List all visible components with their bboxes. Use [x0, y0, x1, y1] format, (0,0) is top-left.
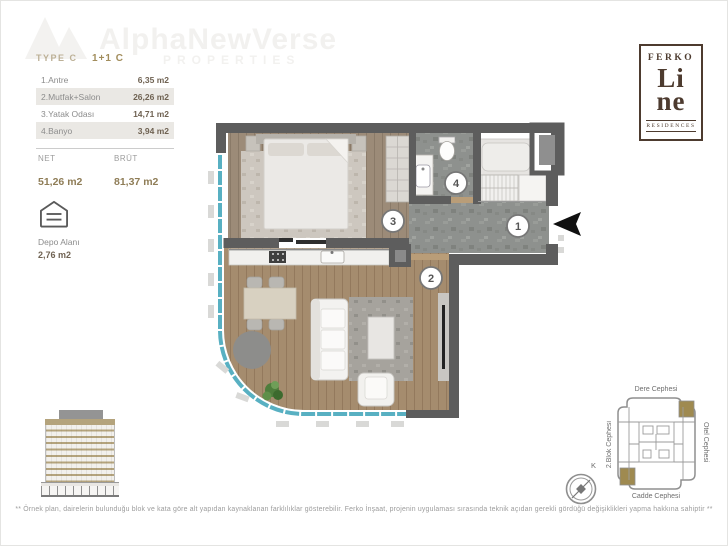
room-area: 6,35 m2	[138, 75, 169, 85]
logo-brand-text: FERKO	[648, 53, 694, 63]
storage-info: Depo Alanı 2,76 m2	[36, 200, 174, 260]
unit-info-panel: TYPE C 1+1 C 1.Antre 6,35 m2 2.Mutfak+Sa…	[36, 53, 174, 260]
sliding-door-leaf	[296, 240, 326, 244]
brut-label: BRÜT	[114, 154, 138, 163]
logo-line-text-2: ne	[657, 89, 686, 113]
divider	[36, 148, 174, 149]
room-area-table: 1.Antre 6,35 m2 2.Mutfak+Salon 26,26 m2 …	[36, 71, 174, 139]
facade-label-blok: 2.Blok Cephesi	[606, 421, 613, 468]
bathtub	[478, 139, 534, 175]
storage-label: Depo Alanı	[38, 237, 174, 247]
building-roof	[59, 410, 103, 419]
bathroom-threshold	[451, 197, 473, 203]
floorplan-sheet: AlphaNewVerse PROPERTIES TYPE C 1+1 C 1.…	[0, 0, 728, 546]
storage-house-icon	[38, 200, 70, 228]
net-brut-values: 51,26 m2 81,37 m2	[36, 176, 174, 188]
room-name: 1.Antre	[41, 75, 68, 85]
wardrobe	[386, 136, 409, 202]
room-name: 3.Yatak Odası	[41, 109, 94, 119]
table-row: 2.Mutfak+Salon 26,26 m2	[36, 88, 174, 105]
table-row: 3.Yatak Odası 14,71 m2	[36, 105, 174, 122]
room-number-1: 1	[515, 221, 521, 233]
net-label: NET	[36, 154, 114, 163]
room-number-4: 4	[453, 178, 460, 190]
table-row: 1.Antre 6,35 m2	[36, 71, 174, 88]
watermark-subtitle: PROPERTIES	[163, 53, 300, 67]
room-number-3: 3	[390, 216, 396, 228]
room-area: 26,26 m2	[133, 92, 169, 102]
building-facade	[45, 425, 115, 482]
closet-shelves	[478, 175, 518, 201]
site-key-plan	[599, 384, 713, 502]
facade-label-cadde: Cadde Cephesi	[599, 493, 713, 500]
facade-label-otel: Otel Cephesi	[702, 422, 709, 462]
watermark-brand: AlphaNewVerse	[99, 23, 337, 57]
round-side-table	[233, 331, 271, 369]
armchair	[358, 373, 394, 406]
storage-value: 2,76 m2	[38, 250, 174, 260]
ferko-line-logo: FERKO Li ne RESIDENCES	[639, 44, 703, 141]
highlighted-unit-top	[679, 401, 694, 417]
column-shaft	[395, 250, 406, 262]
toilet	[439, 137, 455, 161]
net-value: 51,26 m2	[36, 176, 114, 188]
room-name: 4.Banyo	[41, 126, 72, 136]
net-brut-headers: NET BRÜT	[36, 154, 174, 163]
room-area: 14,71 m2	[133, 109, 169, 119]
table-row: 4.Banyo 3,94 m2	[36, 122, 174, 139]
unit-type-value: 1+1 C	[92, 53, 124, 64]
compass-north-label: K	[591, 461, 596, 470]
hall-threshold	[411, 254, 449, 260]
coffee-table	[368, 317, 394, 359]
unit-type-label: TYPE C	[36, 53, 78, 63]
brut-value: 81,37 m2	[114, 176, 158, 188]
disclaimer-text: ** Örnek plan, dairelerin bulunduğu blok…	[1, 506, 727, 513]
room-name: 2.Mutfak+Salon	[41, 92, 100, 102]
compass-icon	[561, 469, 601, 509]
entry-cabinet	[519, 175, 546, 201]
logo-residences-text: RESIDENCES	[646, 120, 695, 132]
highlighted-unit-bottom	[620, 468, 635, 485]
bed	[241, 134, 366, 238]
entry-arrow-icon	[553, 212, 581, 236]
room-area: 3,94 m2	[138, 126, 169, 136]
unit-type-row: TYPE C 1+1 C	[36, 53, 174, 64]
floor-plan: 1 2 3 4	[206, 109, 586, 429]
room-number-2: 2	[428, 273, 434, 285]
building-base	[41, 486, 119, 497]
sofa	[311, 299, 348, 380]
facade-label-dere: Dere Cephesi	[599, 386, 713, 393]
kitchen-counter	[229, 249, 389, 265]
sliding-door-leaf	[279, 238, 293, 242]
building-elevation	[39, 404, 121, 499]
